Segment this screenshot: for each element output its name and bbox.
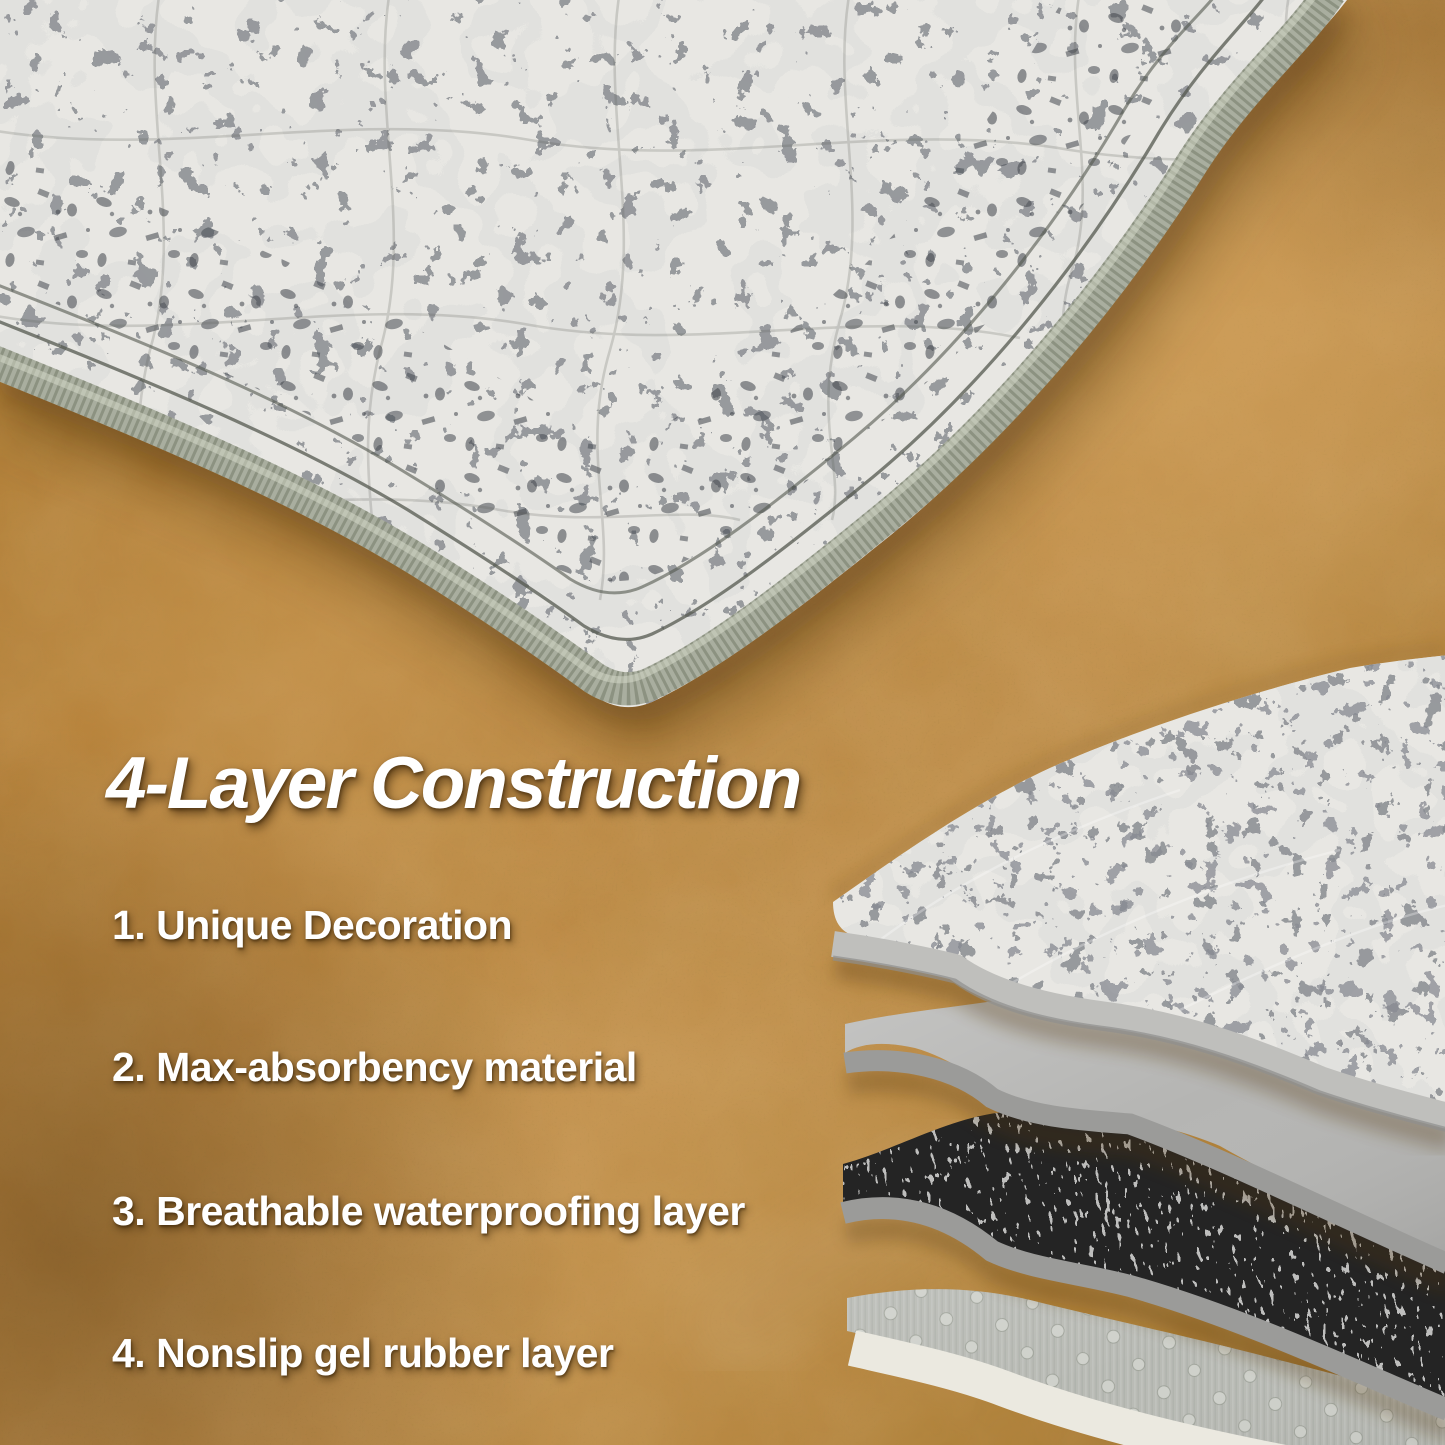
feature-item-4: 4. Nonslip gel rubber layer <box>112 1330 613 1377</box>
feature-item-3: 3. Breathable waterproofing layer <box>112 1188 745 1235</box>
feature-item-2: 2. Max-absorbency material <box>112 1044 637 1091</box>
headline-title: 4-Layer Construction <box>106 742 800 825</box>
product-infographic: 4-Layer Construction 1. Unique Decoratio… <box>0 0 1445 1445</box>
feature-item-1: 1. Unique Decoration <box>112 902 512 949</box>
